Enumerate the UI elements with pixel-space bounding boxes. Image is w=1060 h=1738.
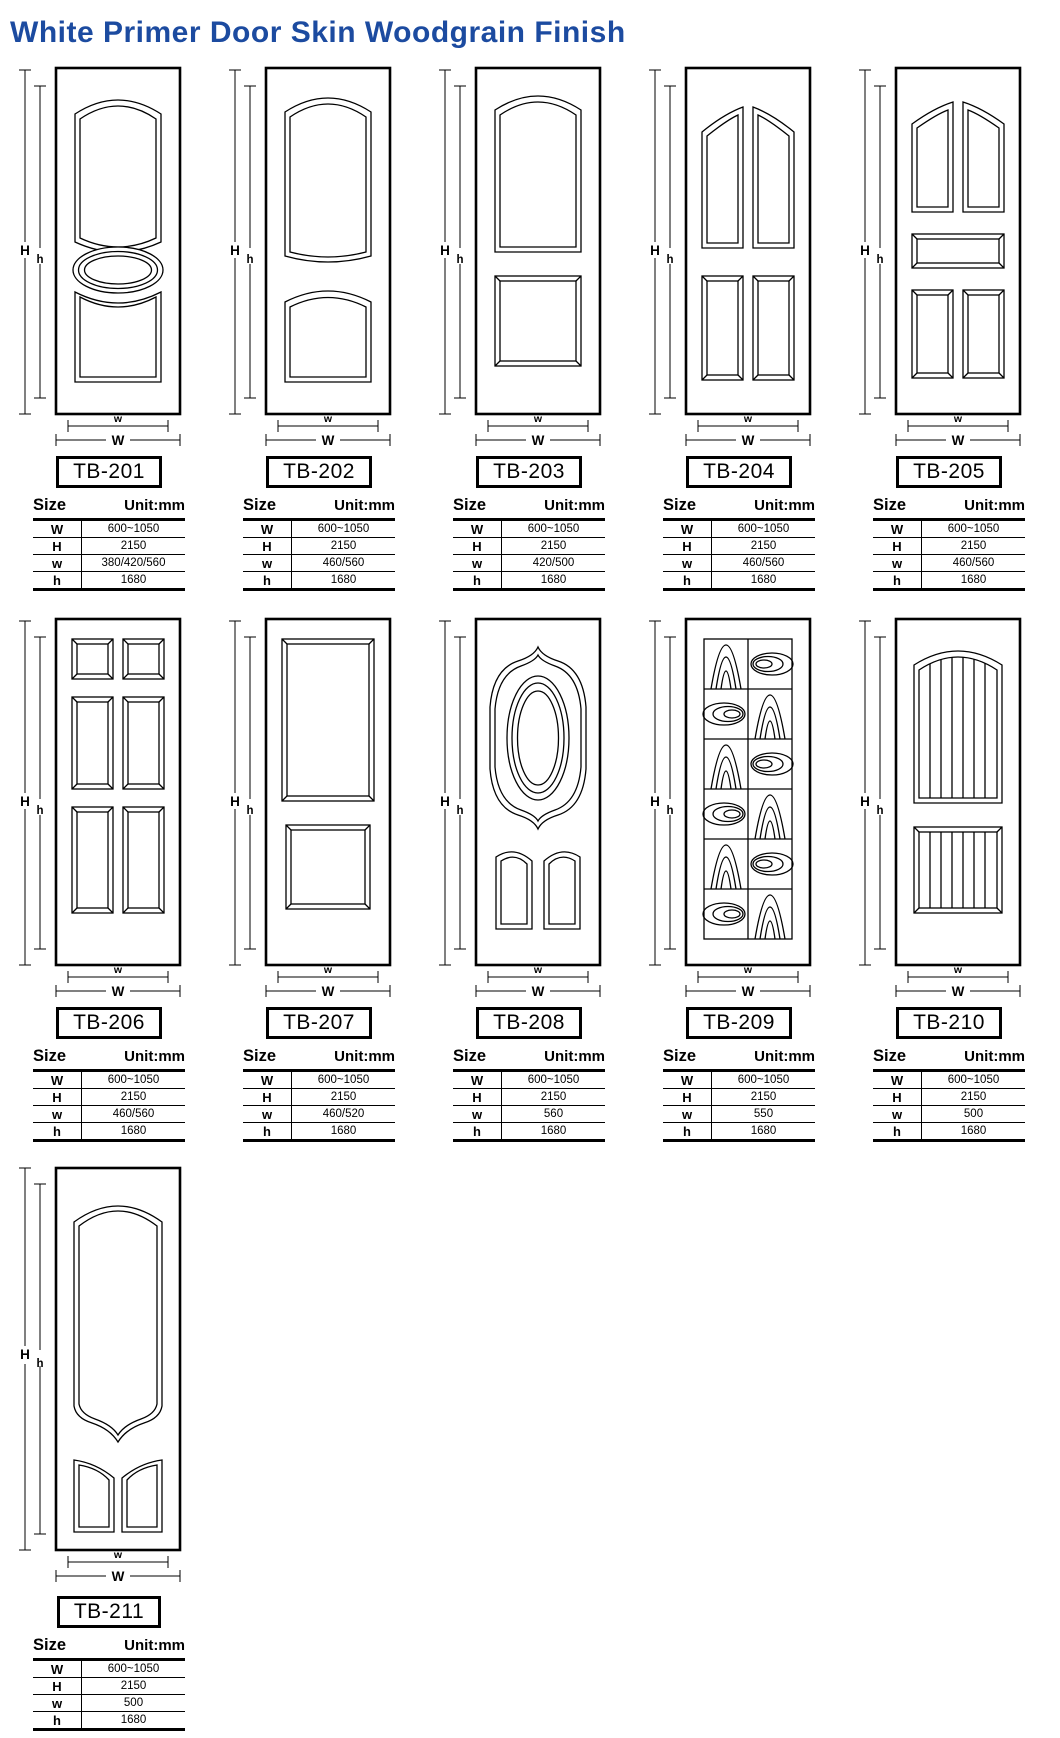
spec-row-label: w — [873, 1106, 922, 1122]
spec-row-value: 1680 — [502, 1123, 605, 1139]
model-label: TB-211 — [57, 1596, 161, 1628]
spec-row-label: h — [663, 572, 712, 588]
model-label: TB-205 — [896, 456, 1002, 488]
table-row: w460/560 — [663, 555, 815, 572]
spec-row-label: h — [33, 1712, 82, 1728]
size-label: Size — [873, 496, 906, 515]
spec-row-value: 2150 — [292, 538, 395, 554]
model-label: TB-207 — [266, 1007, 372, 1039]
table-row: H2150 — [453, 538, 605, 555]
inner-width-label: w — [953, 413, 963, 425]
product-row-3: H h w W TB-211 Size Unit:mm W600~1050 H2… — [0, 1160, 1060, 1731]
spec-row-label: H — [33, 538, 82, 554]
door-drawing-tb-207: H h w W — [220, 611, 418, 1001]
inner-height-label: h — [666, 805, 673, 817]
door-drawing-tb-206: H h w W — [10, 611, 208, 1001]
table-row: H2150 — [33, 1678, 185, 1695]
spec-row-value: 1680 — [712, 572, 815, 588]
product-figure-tb-203: H h w W TB-203 Size Unit:mm W600~1050 H2… — [430, 60, 628, 591]
unit-label: Unit:mm — [124, 497, 185, 514]
table-row: h1680 — [873, 572, 1025, 588]
door-drawing-tb-204: H h w W — [640, 60, 838, 450]
model-label: TB-208 — [476, 1007, 582, 1039]
spec-row-value: 380/420/560 — [82, 555, 185, 571]
product-figure-tb-211: H h w W TB-211 Size Unit:mm W600~1050 H2… — [10, 1160, 208, 1731]
spec-row-value: 1680 — [292, 572, 395, 588]
spec-row-value: 2150 — [712, 538, 815, 554]
spec-row-value: 460/520 — [292, 1106, 395, 1122]
table-row: W600~1050 — [453, 1072, 605, 1089]
spec-row-label: H — [663, 538, 712, 554]
spec-row-label: h — [33, 572, 82, 588]
table-row: h1680 — [243, 572, 395, 588]
outer-width-label: W — [112, 1569, 125, 1584]
size-label: Size — [453, 1047, 486, 1066]
unit-label: Unit:mm — [964, 1048, 1025, 1065]
table-row: H2150 — [873, 1089, 1025, 1106]
size-header: Size Unit:mm — [33, 496, 185, 515]
spec-row-label: w — [663, 555, 712, 571]
spec-table: W600~1050 H2150 w460/560 h1680 — [873, 518, 1025, 591]
spec-row-label: w — [33, 555, 82, 571]
spec-row-value: 2150 — [922, 1089, 1025, 1105]
spec-row-value: 550 — [712, 1106, 815, 1122]
spec-row-label: h — [663, 1123, 712, 1139]
spec-row-label: h — [33, 1123, 82, 1139]
unit-label: Unit:mm — [334, 497, 395, 514]
spec-row-value: 600~1050 — [82, 1661, 185, 1677]
spec-row-label: W — [663, 521, 712, 537]
outer-height-label: H — [20, 794, 30, 809]
spec-row-value: 1680 — [502, 572, 605, 588]
outer-height-label: H — [860, 243, 870, 258]
outer-width-label: W — [322, 433, 335, 448]
inner-width-label: w — [743, 413, 753, 425]
spec-table: W600~1050 H2150 w500 h1680 — [33, 1658, 185, 1731]
spec-row-value: 1680 — [922, 572, 1025, 588]
inner-width-label: w — [743, 964, 753, 976]
outer-height-label: H — [440, 243, 450, 258]
spec-row-value: 420/500 — [502, 555, 605, 571]
outer-width-label: W — [742, 433, 755, 448]
spec-row-value: 600~1050 — [712, 1072, 815, 1088]
size-header: Size Unit:mm — [873, 496, 1025, 515]
door-outline — [686, 68, 810, 414]
outer-width-label: W — [112, 433, 125, 448]
inner-height-label: h — [666, 254, 673, 266]
product-figure-tb-202: H h w W TB-202 Size Unit:mm W600~1050 H2… — [220, 60, 418, 591]
spec-row-value: 600~1050 — [502, 1072, 605, 1088]
table-row: H2150 — [663, 1089, 815, 1106]
spec-table: W600~1050 H2150 w550 h1680 — [663, 1069, 815, 1142]
unit-label: Unit:mm — [334, 1048, 395, 1065]
door-drawing-tb-211: H h w W — [10, 1160, 208, 1590]
spec-row-value: 460/560 — [712, 555, 815, 571]
unit-label: Unit:mm — [544, 497, 605, 514]
size-label: Size — [33, 1636, 66, 1655]
table-row: H2150 — [453, 1089, 605, 1106]
spec-row-value: 500 — [922, 1106, 1025, 1122]
spec-row-value: 600~1050 — [82, 1072, 185, 1088]
unit-label: Unit:mm — [124, 1637, 185, 1654]
table-row: H2150 — [33, 1089, 185, 1106]
spec-row-label: h — [873, 1123, 922, 1139]
table-row: h1680 — [453, 572, 605, 588]
size-label: Size — [33, 1047, 66, 1066]
spec-row-label: w — [243, 555, 292, 571]
table-row: h1680 — [33, 1712, 185, 1728]
spec-row-value: 460/560 — [922, 555, 1025, 571]
inner-width-label: w — [323, 413, 333, 425]
outer-width-label: W — [742, 984, 755, 999]
spec-row-value: 600~1050 — [82, 521, 185, 537]
model-text: TB-211 — [74, 1600, 144, 1623]
spec-row-label: h — [873, 572, 922, 588]
model-text: TB-204 — [703, 460, 775, 483]
inner-height-label: h — [456, 805, 463, 817]
spec-row-value: 1680 — [82, 1123, 185, 1139]
table-row: W600~1050 — [453, 521, 605, 538]
outer-height-label: H — [20, 243, 30, 258]
spec-row-label: H — [873, 1089, 922, 1105]
inner-width-label: w — [953, 964, 963, 976]
spec-row-value: 600~1050 — [502, 521, 605, 537]
table-row: w460/560 — [33, 1106, 185, 1123]
spec-row-value: 600~1050 — [292, 521, 395, 537]
spec-table: W600~1050 H2150 w460/560 h1680 — [33, 1069, 185, 1142]
table-row: W600~1050 — [33, 1661, 185, 1678]
spec-row-value: 2150 — [502, 538, 605, 554]
spec-row-value: 600~1050 — [712, 521, 815, 537]
spec-row-value: 2150 — [292, 1089, 395, 1105]
size-header: Size Unit:mm — [873, 1047, 1025, 1066]
spec-row-label: W — [33, 1661, 82, 1677]
door-outline — [896, 68, 1020, 414]
table-row: W600~1050 — [663, 1072, 815, 1089]
spec-row-label: h — [453, 1123, 502, 1139]
table-row: h1680 — [33, 572, 185, 588]
inner-width-label: w — [323, 964, 333, 976]
model-text: TB-207 — [283, 1011, 355, 1034]
spec-row-label: h — [243, 572, 292, 588]
table-row: w550 — [663, 1106, 815, 1123]
spec-row-label: H — [243, 1089, 292, 1105]
model-label: TB-201 — [56, 456, 162, 488]
table-row: h1680 — [663, 572, 815, 588]
size-header: Size Unit:mm — [663, 496, 815, 515]
table-row: W600~1050 — [243, 521, 395, 538]
outer-width-label: W — [952, 984, 965, 999]
spec-table: W600~1050 H2150 w380/420/560 h1680 — [33, 518, 185, 591]
spec-row-label: w — [243, 1106, 292, 1122]
model-text: TB-205 — [913, 460, 985, 483]
table-row: W600~1050 — [33, 1072, 185, 1089]
spec-row-value: 600~1050 — [292, 1072, 395, 1088]
table-row: H2150 — [873, 538, 1025, 555]
inner-height-label: h — [246, 254, 253, 266]
unit-label: Unit:mm — [544, 1048, 605, 1065]
inner-width-label: w — [113, 964, 123, 976]
product-figure-tb-201: H h w W TB-201 Size Unit:mm W600~1050 H2… — [10, 60, 208, 591]
spec-table: W600~1050 H2150 w460/520 h1680 — [243, 1069, 395, 1142]
spec-row-label: w — [663, 1106, 712, 1122]
spec-row-label: w — [453, 555, 502, 571]
table-row: h1680 — [243, 1123, 395, 1139]
product-figure-tb-209: H h w W TB-209 Size Unit:mm W600~1050 H2… — [640, 611, 838, 1142]
table-row: h1680 — [453, 1123, 605, 1139]
table-row: w500 — [873, 1106, 1025, 1123]
table-row: h1680 — [873, 1123, 1025, 1139]
spec-row-label: H — [453, 538, 502, 554]
table-row: h1680 — [663, 1123, 815, 1139]
inner-height-label: h — [36, 805, 43, 817]
table-row: w380/420/560 — [33, 555, 185, 572]
outer-height-label: H — [20, 1347, 30, 1362]
inner-height-label: h — [456, 254, 463, 266]
spec-row-value: 600~1050 — [922, 1072, 1025, 1088]
model-text: TB-201 — [73, 460, 145, 483]
size-header: Size Unit:mm — [453, 1047, 605, 1066]
size-label: Size — [33, 496, 66, 515]
size-header: Size Unit:mm — [663, 1047, 815, 1066]
size-header: Size Unit:mm — [453, 496, 605, 515]
product-figure-tb-207: H h w W TB-207 Size Unit:mm W600~1050 H2… — [220, 611, 418, 1142]
outer-height-label: H — [650, 243, 660, 258]
model-label: TB-206 — [56, 1007, 162, 1039]
table-row: w460/560 — [243, 555, 395, 572]
table-row: W600~1050 — [873, 1072, 1025, 1089]
size-label: Size — [243, 496, 276, 515]
outer-width-label: W — [112, 984, 125, 999]
table-row: H2150 — [243, 1089, 395, 1106]
outer-width-label: W — [532, 433, 545, 448]
outer-width-label: W — [952, 433, 965, 448]
spec-row-label: h — [453, 572, 502, 588]
spec-table: W600~1050 H2150 w460/560 h1680 — [663, 518, 815, 591]
table-row: W600~1050 — [873, 521, 1025, 538]
spec-row-value: 1680 — [292, 1123, 395, 1139]
size-label: Size — [873, 1047, 906, 1066]
model-text: TB-203 — [493, 460, 565, 483]
table-row: w460/560 — [873, 555, 1025, 572]
model-text: TB-209 — [703, 1011, 775, 1034]
model-label: TB-203 — [476, 456, 582, 488]
page-title: White Primer Door Skin Woodgrain Finish — [10, 16, 1060, 50]
product-figure-tb-205: H h w W TB-205 Size Unit:mm W600~1050 H2… — [850, 60, 1048, 591]
unit-label: Unit:mm — [754, 1048, 815, 1065]
size-label: Size — [453, 496, 486, 515]
inner-width-label: w — [113, 1549, 123, 1561]
size-label: Size — [663, 496, 696, 515]
inner-height-label: h — [36, 254, 43, 266]
spec-row-label: H — [33, 1089, 82, 1105]
model-text: TB-202 — [283, 460, 355, 483]
model-label: TB-202 — [266, 456, 372, 488]
model-text: TB-206 — [73, 1011, 145, 1034]
table-row: h1680 — [33, 1123, 185, 1139]
size-label: Size — [663, 1047, 696, 1066]
spec-row-label: w — [33, 1695, 82, 1711]
model-label: TB-209 — [686, 1007, 792, 1039]
table-row: w420/500 — [453, 555, 605, 572]
unit-label: Unit:mm — [124, 1048, 185, 1065]
door-drawing-tb-203: H h w W — [430, 60, 628, 450]
table-row: W600~1050 — [33, 521, 185, 538]
spec-table: W600~1050 H2150 w420/500 h1680 — [453, 518, 605, 591]
size-header: Size Unit:mm — [33, 1636, 185, 1655]
inner-width-label: w — [533, 413, 543, 425]
table-row: W600~1050 — [243, 1072, 395, 1089]
product-figure-tb-206: H h w W TB-206 Size Unit:mm W600~1050 H2… — [10, 611, 208, 1142]
outer-height-label: H — [860, 794, 870, 809]
table-row: w500 — [33, 1695, 185, 1712]
size-header: Size Unit:mm — [33, 1047, 185, 1066]
unit-label: Unit:mm — [754, 497, 815, 514]
table-row: w460/520 — [243, 1106, 395, 1123]
spec-row-label: W — [33, 521, 82, 537]
model-text: TB-210 — [913, 1011, 985, 1034]
spec-row-value: 1680 — [82, 572, 185, 588]
model-label: TB-204 — [686, 456, 792, 488]
table-row: w560 — [453, 1106, 605, 1123]
spec-row-label: H — [243, 538, 292, 554]
spec-row-label: H — [33, 1678, 82, 1694]
outer-width-label: W — [532, 984, 545, 999]
spec-row-label: h — [243, 1123, 292, 1139]
door-outline — [266, 619, 390, 965]
spec-row-label: W — [453, 521, 502, 537]
outer-height-label: H — [230, 243, 240, 258]
inner-width-label: w — [533, 964, 543, 976]
spec-row-value: 1680 — [82, 1712, 185, 1728]
unit-label: Unit:mm — [964, 497, 1025, 514]
size-header: Size Unit:mm — [243, 1047, 395, 1066]
spec-row-value: 1680 — [922, 1123, 1025, 1139]
outer-height-label: H — [440, 794, 450, 809]
spec-row-value: 1680 — [712, 1123, 815, 1139]
table-row: H2150 — [33, 538, 185, 555]
inner-height-label: h — [36, 1358, 43, 1370]
spec-row-value: 560 — [502, 1106, 605, 1122]
spec-row-label: W — [873, 521, 922, 537]
door-drawing-tb-210: H h w W — [850, 611, 1048, 1001]
table-row: H2150 — [243, 538, 395, 555]
spec-row-label: H — [453, 1089, 502, 1105]
product-figure-tb-210: H h w W TB-210 Size Unit:mm W600~1050 H2… — [850, 611, 1048, 1142]
door-drawing-tb-202: H h w W — [220, 60, 418, 450]
spec-row-label: W — [33, 1072, 82, 1088]
spec-row-value: 2150 — [82, 1089, 185, 1105]
spec-row-value: 500 — [82, 1695, 185, 1711]
spec-row-value: 2150 — [922, 538, 1025, 554]
table-row: H2150 — [663, 538, 815, 555]
door-drawing-tb-205: H h w W — [850, 60, 1048, 450]
spec-row-label: W — [873, 1072, 922, 1088]
spec-row-label: W — [243, 1072, 292, 1088]
model-text: TB-208 — [493, 1011, 565, 1034]
inner-height-label: h — [246, 805, 253, 817]
model-label: TB-210 — [896, 1007, 1002, 1039]
spec-row-label: W — [663, 1072, 712, 1088]
spec-row-value: 2150 — [82, 1678, 185, 1694]
spec-table: W600~1050 H2150 w560 h1680 — [453, 1069, 605, 1142]
spec-row-label: w — [873, 555, 922, 571]
spec-row-label: w — [33, 1106, 82, 1122]
spec-row-label: H — [873, 538, 922, 554]
outer-height-label: H — [230, 794, 240, 809]
spec-row-label: W — [243, 521, 292, 537]
spec-row-label: H — [663, 1089, 712, 1105]
spec-row-label: w — [453, 1106, 502, 1122]
spec-table: W600~1050 H2150 w500 h1680 — [873, 1069, 1025, 1142]
inner-height-label: h — [876, 805, 883, 817]
spec-row-value: 600~1050 — [922, 521, 1025, 537]
spec-row-value: 460/560 — [82, 1106, 185, 1122]
door-drawing-tb-209: H h w W — [640, 611, 838, 1001]
product-row-2: H h w W TB-206 Size Unit:mm W600~1050 H2… — [0, 611, 1060, 1142]
outer-height-label: H — [650, 794, 660, 809]
spec-row-value: 2150 — [82, 538, 185, 554]
inner-width-label: w — [113, 413, 123, 425]
table-row: W600~1050 — [663, 521, 815, 538]
spec-row-label: W — [453, 1072, 502, 1088]
door-drawing-tb-201: H h w W — [10, 60, 208, 450]
spec-row-value: 460/560 — [292, 555, 395, 571]
spec-row-value: 2150 — [712, 1089, 815, 1105]
outer-width-label: W — [322, 984, 335, 999]
inner-height-label: h — [876, 254, 883, 266]
door-drawing-tb-208: H h w W — [430, 611, 628, 1001]
size-header: Size Unit:mm — [243, 496, 395, 515]
product-figure-tb-204: H h w W TB-204 Size Unit:mm W600~1050 H2… — [640, 60, 838, 591]
product-figure-tb-208: H h w W TB-208 Size Unit:mm W600~1050 H2… — [430, 611, 628, 1142]
product-row-1: H h w W TB-201 Size Unit:mm W600~1050 H2… — [0, 60, 1060, 591]
size-label: Size — [243, 1047, 276, 1066]
spec-table: W600~1050 H2150 w460/560 h1680 — [243, 518, 395, 591]
spec-row-value: 2150 — [502, 1089, 605, 1105]
